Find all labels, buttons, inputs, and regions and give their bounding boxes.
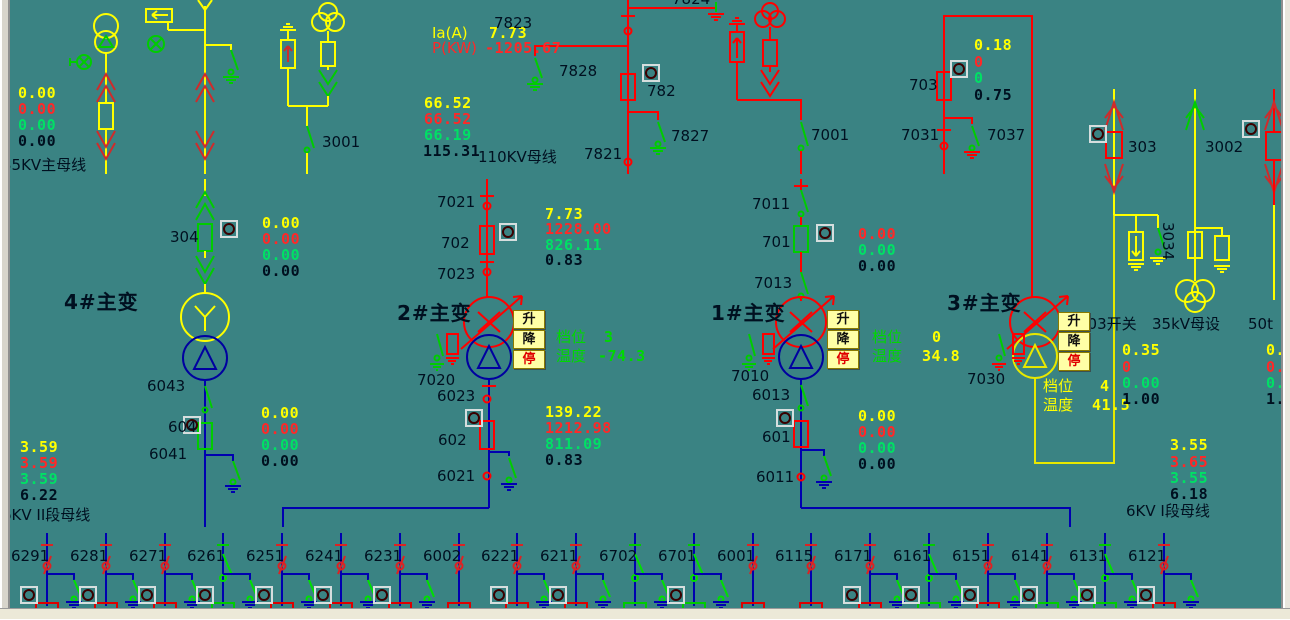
disconnector-7013-open xyxy=(801,272,808,294)
t2-tap-controls-raise-button[interactable]: 升 xyxy=(513,310,545,329)
lbl-feeder-6211: 6211 xyxy=(540,548,578,564)
earth-switch-7827 xyxy=(658,122,665,142)
feeder-6002[interactable] xyxy=(448,533,470,609)
lbl-7011: 7011 xyxy=(752,196,790,212)
lbl-7823: 7823 xyxy=(494,15,532,31)
earth-switch-602 xyxy=(509,458,516,478)
lbl-feeder-6151: 6151 xyxy=(952,548,990,564)
lbl-feeder-6261: 6261 xyxy=(187,548,225,564)
lbl-7827: 7827 xyxy=(671,128,709,144)
earth-switch-7037 xyxy=(972,126,979,146)
ind-303[interactable] xyxy=(1090,126,1106,142)
ind-702[interactable] xyxy=(500,224,516,240)
breaker-701-open xyxy=(794,226,808,252)
pt-branch-110kv[interactable] xyxy=(729,3,808,174)
feeder-column-35kv-b[interactable] xyxy=(146,0,239,174)
ind-601[interactable] xyxy=(777,410,793,426)
lbl-7824: 7824 xyxy=(672,0,710,7)
transformer-2-column[interactable] xyxy=(283,179,522,527)
earth-switch-6701 xyxy=(721,580,728,597)
t2-tap-controls-stop-button[interactable]: 停 xyxy=(513,350,545,369)
val-701-q: 0.00 xyxy=(858,242,896,258)
val-303-q: 0.00 xyxy=(1122,375,1160,391)
lbl-feeder-6281: 6281 xyxy=(70,548,108,564)
t1-tap-controls-stop-button[interactable]: 停 xyxy=(827,350,859,369)
lbl-35kv-mushe: 35kV母设 xyxy=(1152,316,1220,332)
val-bus2-ua: 3.59 xyxy=(20,439,58,455)
val-602-cos: 0.83 xyxy=(545,452,583,468)
lbl-601: 601 xyxy=(762,429,791,445)
bus-110kv[interactable] xyxy=(415,174,948,179)
lbl-702: 702 xyxy=(441,235,470,251)
feeder-6291[interactable] xyxy=(36,533,82,609)
lbl-7020: 7020 xyxy=(417,372,455,388)
t2-tap-value: 3 xyxy=(604,329,614,345)
t1-temp-label: 温度 xyxy=(872,348,902,364)
ind-6151[interactable] xyxy=(962,587,978,603)
lbl-feeder-6161: 6161 xyxy=(893,548,931,564)
lbl-feeder-6131: 6131 xyxy=(1069,548,1107,564)
feeder-6281[interactable] xyxy=(95,533,141,609)
name-t2: 2#主变 xyxy=(397,305,472,321)
lbl-35kv-bus: 35KV主母线 xyxy=(2,157,86,173)
val-35kv-cos: 0.00 xyxy=(18,133,56,149)
lbl-feeder-6221: 6221 xyxy=(481,548,519,564)
val-304-ia: 0.00 xyxy=(262,215,300,231)
earth-switch-6211 xyxy=(603,580,610,597)
val-110-ua: 66.52 xyxy=(424,95,472,111)
ind-6221[interactable] xyxy=(491,587,507,603)
lbl-7821: 7821 xyxy=(584,146,622,162)
lbl-6021: 6021 xyxy=(437,468,475,484)
ind-701[interactable] xyxy=(817,225,833,241)
single-line-diagram xyxy=(0,0,1290,620)
t1-tap-value: 0 xyxy=(932,329,942,345)
val-601-ia: 0.00 xyxy=(858,408,896,424)
t1-temp-value: 34.8 xyxy=(922,348,960,364)
ind-6121[interactable] xyxy=(1138,587,1154,603)
val-702-cos: 0.83 xyxy=(545,252,583,268)
feeder-6231[interactable] xyxy=(389,533,435,609)
earth-switch-7828 xyxy=(535,58,542,78)
transformer-3-neutral-switch xyxy=(999,334,1005,356)
lbl-6043: 6043 xyxy=(147,378,185,394)
disconnector-7011-open xyxy=(801,190,808,212)
t1-tap-controls-raise-button[interactable]: 升 xyxy=(827,310,859,329)
bus-35kv-right[interactable] xyxy=(1085,85,1282,89)
disconnector-6013-open xyxy=(801,385,808,406)
val-303-cos: 1.00 xyxy=(1122,391,1160,407)
feeder-6702[interactable] xyxy=(624,533,670,609)
ind-6241[interactable] xyxy=(315,587,331,603)
val-701-cos: 0.00 xyxy=(858,258,896,274)
transformer-1-neutral-arrester xyxy=(763,334,774,354)
feeder-6151[interactable] xyxy=(977,533,1023,609)
lbl-7010: 7010 xyxy=(731,368,769,384)
val-703-p: 0 xyxy=(974,54,984,70)
feeder-6131[interactable] xyxy=(1094,533,1140,609)
ind-6131[interactable] xyxy=(1079,587,1095,603)
ind-6231[interactable] xyxy=(374,587,390,603)
ind-6161[interactable] xyxy=(903,587,919,603)
t3-temp-label: 温度 xyxy=(1043,397,1073,413)
lbl-feeder-6171: 6171 xyxy=(834,548,872,564)
earth-switch-6041 xyxy=(233,461,240,480)
disconnector-7001-open xyxy=(801,122,808,146)
breaker-304-open xyxy=(198,224,212,251)
scada-substation-screen: 0.000.000.000.0035KV主母线30013040.000.000.… xyxy=(0,0,1290,620)
feeder-6001[interactable] xyxy=(742,533,764,609)
earth-switch-6121 xyxy=(1191,580,1198,597)
val-304-q: 0.00 xyxy=(262,247,300,263)
transformer-3-lv-winding xyxy=(1013,334,1057,378)
val-303-p: 0 xyxy=(1122,359,1132,375)
lbl-6011: 6011 xyxy=(756,469,794,485)
feeder-6211[interactable] xyxy=(565,533,611,609)
feeder-6171[interactable] xyxy=(859,533,905,609)
val-110-uab: 115.31 xyxy=(423,143,480,159)
lbl-feeder-6231: 6231 xyxy=(364,548,402,564)
ind-304[interactable] xyxy=(221,221,237,237)
window-scrollbar-strip[interactable] xyxy=(0,608,1290,620)
val-bus2-uab: 6.22 xyxy=(20,487,58,503)
val-110-uc: 66.19 xyxy=(424,127,472,143)
pt-column-3002[interactable] xyxy=(1176,89,1230,312)
earth-switch-601 xyxy=(824,456,831,476)
lbl-feeder-6141: 6141 xyxy=(1011,548,1049,564)
lbl-p-kw: P(KW) xyxy=(432,40,477,56)
val-35kv-p: 0.00 xyxy=(18,101,56,117)
val-304-p: 0.00 xyxy=(262,231,300,247)
lbl-7030: 7030 xyxy=(967,371,1005,387)
lbl-3002: 3002 xyxy=(1205,139,1243,155)
transformer-2-lv-winding xyxy=(467,335,511,379)
t2-temp-value: -74.3 xyxy=(598,348,646,364)
val-604-q: 0.00 xyxy=(261,437,299,453)
t3-tap-controls-stop-button[interactable]: 停 xyxy=(1058,352,1090,371)
transformer-2-neutral-switch xyxy=(437,334,443,356)
val-702-p: 1228.00 xyxy=(545,221,612,237)
val-601-cos: 0.00 xyxy=(858,456,896,472)
transformer-1-lv-winding xyxy=(779,335,823,379)
val-bus1-ub: 3.65 xyxy=(1170,454,1208,470)
lbl-feeder-6115: 6115 xyxy=(775,548,813,564)
t3-tap-value: 4 xyxy=(1100,378,1110,394)
val-701-p: 0.00 xyxy=(858,226,896,242)
ind-6271[interactable] xyxy=(139,587,155,603)
lbl-feeder-6701: 6701 xyxy=(658,548,696,564)
val-703-q: 0 xyxy=(974,70,984,86)
transformer-1-neutral-switch xyxy=(749,334,755,356)
lbl-701: 701 xyxy=(762,234,791,250)
val-bus1-uab: 6.18 xyxy=(1170,486,1208,502)
lbl-7021: 7021 xyxy=(437,194,475,210)
lbl-bus-6kv1: 6KV I段母线 xyxy=(1126,503,1210,519)
ind-6291[interactable] xyxy=(21,587,37,603)
val-601-q: 0.00 xyxy=(858,440,896,456)
val-bus1-uc: 3.55 xyxy=(1170,470,1208,486)
ind-6141[interactable] xyxy=(1021,587,1037,603)
ind-6251[interactable] xyxy=(256,587,272,603)
lbl-bus-6kv2: 6KV II段母线 xyxy=(2,507,90,523)
feeder-6121[interactable] xyxy=(1153,533,1199,609)
transformer-4-lv-winding xyxy=(183,336,227,380)
lbl-304: 304 xyxy=(170,229,199,245)
feeder-6241[interactable] xyxy=(330,533,376,609)
lbl-feeder-6002: 6002 xyxy=(423,548,461,564)
feeder-6221[interactable] xyxy=(506,533,552,609)
t2-temp-label: 温度 xyxy=(556,348,586,364)
lbl-303: 303 xyxy=(1128,139,1157,155)
val-303-ia: 0.35 xyxy=(1122,342,1160,358)
ind-6261[interactable] xyxy=(197,587,213,603)
lbl-7023: 7023 xyxy=(437,266,475,282)
lbl-3034: 3034 xyxy=(1160,222,1176,260)
val-602-ia: 139.22 xyxy=(545,404,602,420)
ind-50t[interactable] xyxy=(1243,121,1259,137)
val-p-kw: -1205.67 xyxy=(485,40,561,56)
bus-35kv-main[interactable] xyxy=(14,174,420,179)
lbl-feeder-6241: 6241 xyxy=(305,548,343,564)
lbl-6041: 6041 xyxy=(149,446,187,462)
val-bus2-ub: 3.59 xyxy=(20,455,58,471)
val-304-cos: 0.00 xyxy=(262,263,300,279)
feeder-6701[interactable] xyxy=(683,533,729,609)
lbl-6013: 6013 xyxy=(752,387,790,403)
t2-tap-label: 档位 xyxy=(556,329,586,345)
val-604-ia: 0.00 xyxy=(261,405,299,421)
val-35kv-q: 0.00 xyxy=(18,117,56,133)
lbl-110kv-bus: 110KV母线 xyxy=(478,149,557,165)
t2-tap-controls-lower-button[interactable]: 降 xyxy=(513,330,545,349)
val-703-ia: 0.18 xyxy=(974,37,1012,53)
val-602-q: 811.09 xyxy=(545,436,602,452)
lbl-782: 782 xyxy=(647,83,676,99)
lbl-602: 602 xyxy=(438,432,467,448)
lbl-7037: 7037 xyxy=(987,127,1025,143)
lbl-feeder-6251: 6251 xyxy=(246,548,284,564)
val-602-p: 1212.98 xyxy=(545,420,612,436)
feeder-6161[interactable] xyxy=(918,533,964,609)
val-604-cos: 0.00 xyxy=(261,453,299,469)
earth-switch-6231 xyxy=(427,580,434,597)
t3-tap-controls-raise-button[interactable]: 升 xyxy=(1058,312,1090,331)
ind-6211[interactable] xyxy=(550,587,566,603)
lbl-50t: 50t xyxy=(1248,316,1273,332)
val-601-p: 0.00 xyxy=(858,424,896,440)
lbl-604: 604 xyxy=(168,419,197,435)
ind-703[interactable] xyxy=(951,61,967,77)
t1-tap-controls-lower-button[interactable]: 降 xyxy=(827,330,859,349)
transformer-3-column[interactable] xyxy=(937,16,1114,463)
val-bus1-ua: 3.55 xyxy=(1170,437,1208,453)
t3-tap-label: 档位 xyxy=(1043,378,1073,394)
ind-6281[interactable] xyxy=(80,587,96,603)
lbl-703: 703 xyxy=(909,77,938,93)
feeder-6271[interactable] xyxy=(154,533,200,609)
arrester-35kv-2 xyxy=(1215,236,1229,260)
val-703-cos: 0.75 xyxy=(974,87,1012,103)
feeder-6141[interactable] xyxy=(1036,533,1082,609)
val-110-ub: 66.52 xyxy=(424,111,472,127)
val-35kv-ia: 0.00 xyxy=(18,85,56,101)
lbl-feeder-6121: 6121 xyxy=(1128,548,1166,564)
name-t3: 3#主变 xyxy=(947,295,1022,311)
transformer-2-neutral-arrester xyxy=(447,334,458,354)
lbl-7828: 7828 xyxy=(559,63,597,79)
ind-782[interactable] xyxy=(643,65,659,81)
feeder-6251[interactable] xyxy=(271,533,317,609)
lbl-7001: 7001 xyxy=(811,127,849,143)
feeder-6261[interactable] xyxy=(212,533,258,609)
window-border-right xyxy=(1281,0,1290,620)
disconnector-6043 xyxy=(205,386,212,408)
lbl-feeder-6291: 6291 xyxy=(11,548,49,564)
lbl-feeder-6001: 6001 xyxy=(717,548,755,564)
lbl-feeder-6702: 6702 xyxy=(599,548,637,564)
lbl-7013: 7013 xyxy=(754,275,792,291)
t3-tap-controls-lower-button[interactable]: 降 xyxy=(1058,332,1090,351)
lbl-3001: 3001 xyxy=(322,134,360,150)
feeder-6115[interactable] xyxy=(800,533,822,609)
lbl-6023: 6023 xyxy=(437,388,475,404)
val-bus2-uc: 3.59 xyxy=(20,471,58,487)
ind-6701[interactable] xyxy=(668,587,684,603)
pt-column-35kv-a[interactable] xyxy=(70,14,118,174)
name-t4: 4#主变 xyxy=(64,294,139,310)
t1-tap-label: 档位 xyxy=(872,329,902,345)
lbl-7031: 7031 xyxy=(901,127,939,143)
ind-6171[interactable] xyxy=(844,587,860,603)
val-604-p: 0.00 xyxy=(261,421,299,437)
window-border-left xyxy=(0,0,10,620)
bus-6kv[interactable] xyxy=(14,527,1252,533)
name-t1: 1#主变 xyxy=(711,305,786,321)
lbl-feeder-6271: 6271 xyxy=(129,548,167,564)
